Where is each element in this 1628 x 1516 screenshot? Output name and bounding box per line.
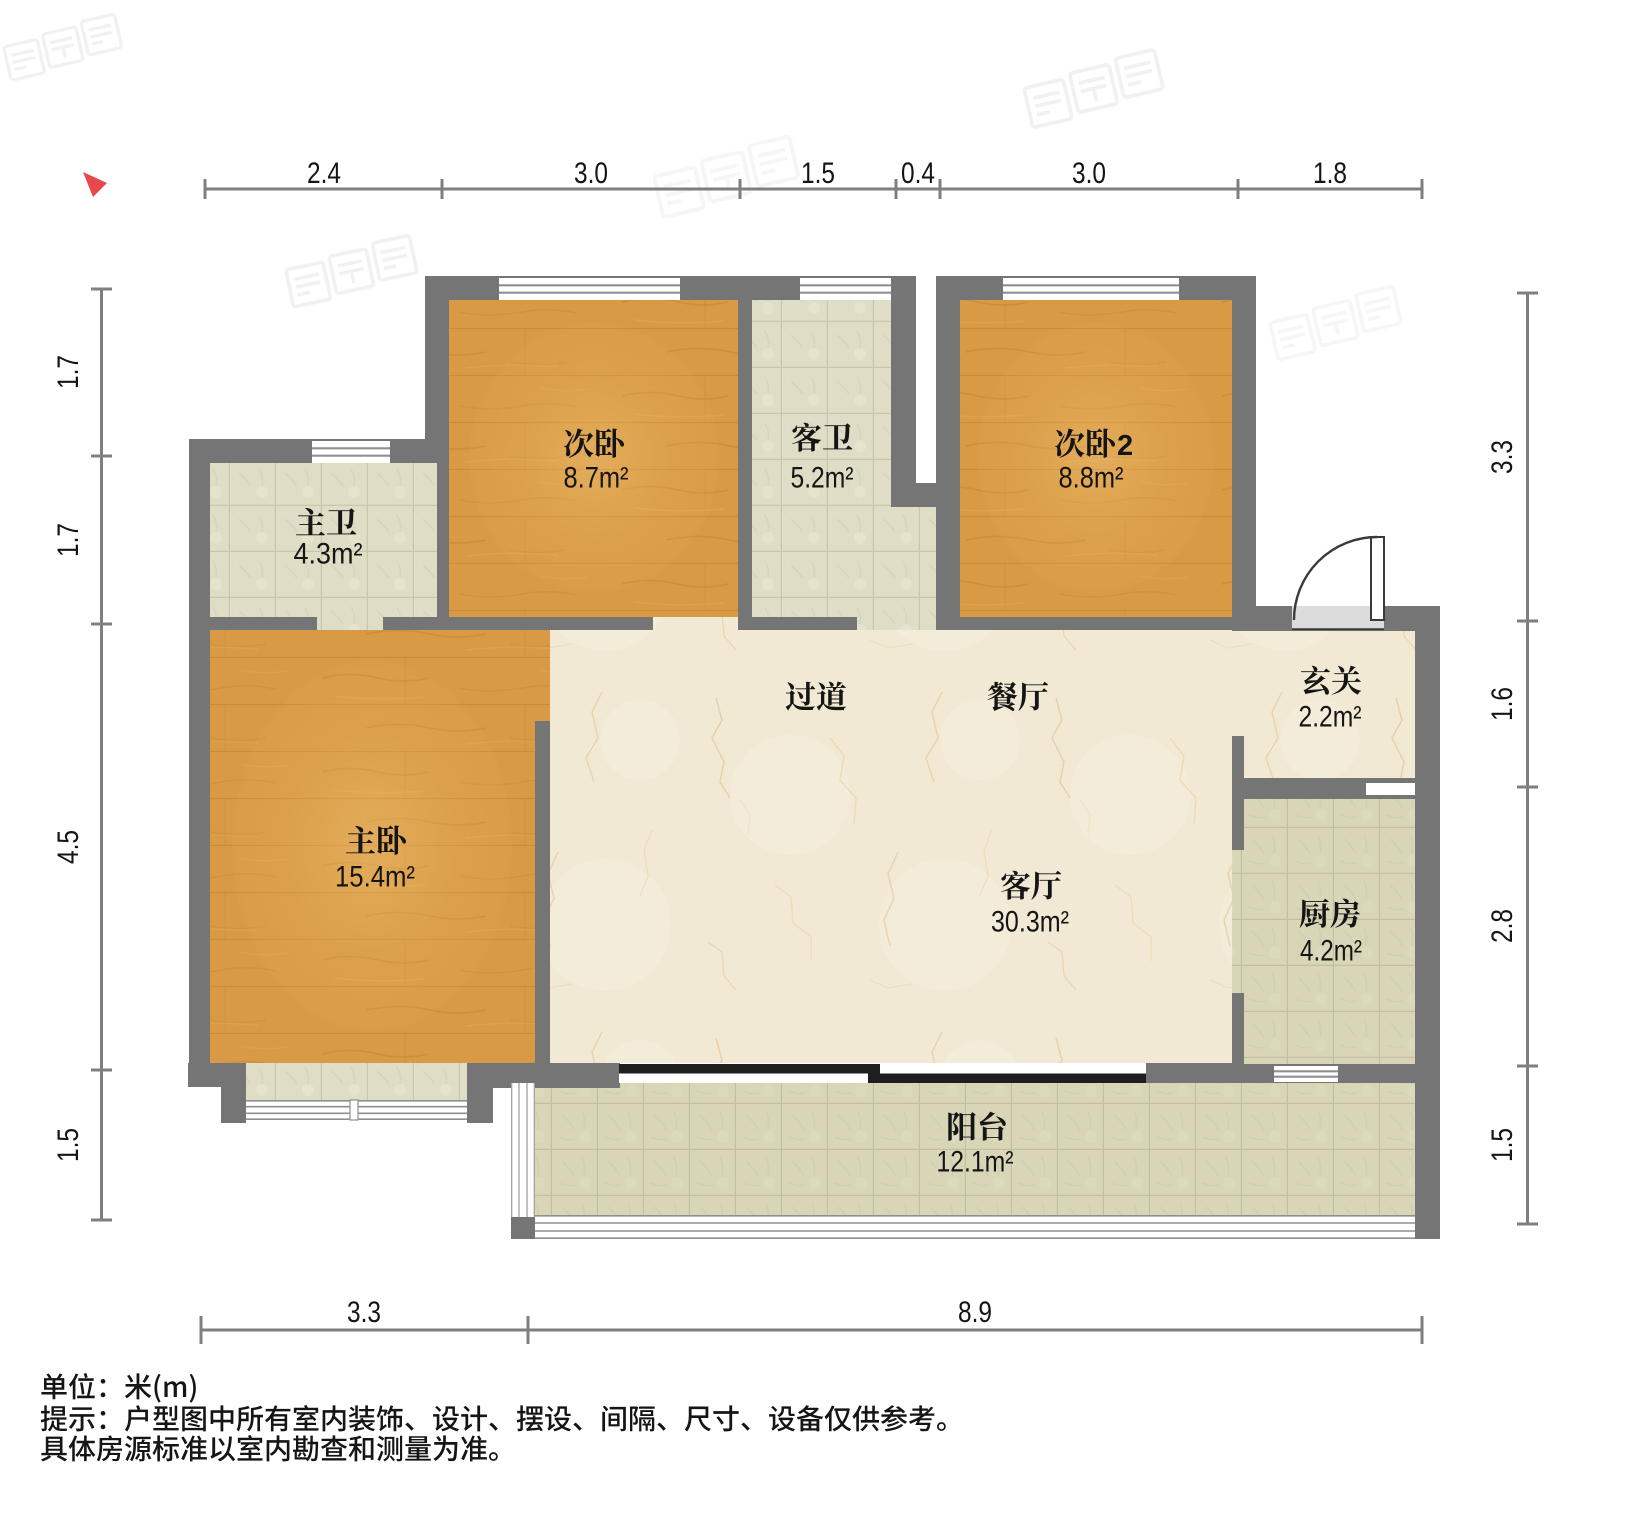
svg-text:1.5: 1.5	[1486, 1128, 1519, 1162]
svg-text:30.3m²: 30.3m²	[991, 906, 1069, 939]
svg-text:3.3: 3.3	[1486, 440, 1519, 474]
svg-text:5.2m²: 5.2m²	[791, 462, 854, 495]
svg-text:2.4: 2.4	[307, 157, 341, 190]
svg-text:4.5: 4.5	[52, 830, 85, 864]
svg-text:1.6: 1.6	[1486, 687, 1519, 721]
svg-text:12.1m²: 12.1m²	[937, 1146, 1014, 1179]
svg-text:8.8m²: 8.8m²	[1059, 462, 1124, 495]
svg-text:3.3: 3.3	[347, 1296, 381, 1329]
svg-text:1.5: 1.5	[52, 1128, 85, 1162]
svg-text:2.2m²: 2.2m²	[1299, 701, 1362, 734]
svg-text:0.4: 0.4	[901, 157, 935, 190]
svg-text:1.7: 1.7	[52, 523, 85, 557]
svg-text:1.8: 1.8	[1313, 157, 1347, 190]
svg-text:8.7m²: 8.7m²	[564, 462, 629, 495]
svg-text:4.3m²: 4.3m²	[294, 538, 363, 571]
svg-text:8.9: 8.9	[958, 1296, 992, 1329]
svg-text:3.0: 3.0	[574, 157, 608, 190]
svg-text:1.7: 1.7	[52, 355, 85, 389]
svg-text:2: 2	[1117, 430, 1133, 462]
svg-text:2.8: 2.8	[1486, 909, 1519, 943]
svg-text:1.5: 1.5	[801, 157, 835, 190]
svg-text:15.4m²: 15.4m²	[335, 861, 415, 894]
svg-text:3.0: 3.0	[1072, 157, 1106, 190]
svg-text:4.2m²: 4.2m²	[1300, 935, 1362, 968]
